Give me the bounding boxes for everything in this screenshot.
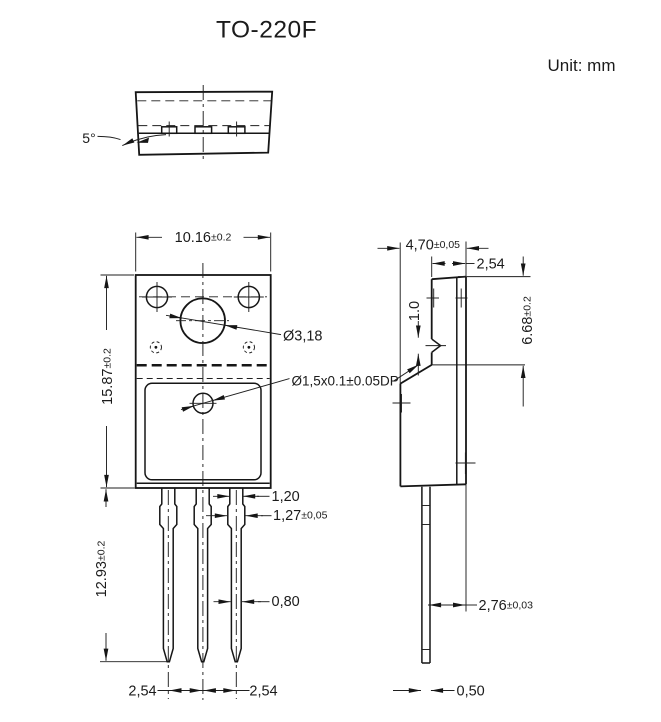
front-view: 10.16±0.2 15.87±0.2 12.93±0.2 1,20 bbox=[94, 230, 419, 700]
label-text: Ø3,18 bbox=[283, 329, 323, 345]
label-text: Ø1,5x0.1±0.05DP bbox=[292, 374, 399, 389]
draft-angle-leader-stub bbox=[98, 136, 121, 139]
side-view: 4,70±0,05 2,54 6.68±0.2 1.0 bbox=[378, 237, 537, 699]
dim-text: 15.87±0.2 bbox=[100, 348, 116, 405]
dim-text: 12.93±0.2 bbox=[94, 541, 110, 598]
draft-angle-label: 5° bbox=[82, 130, 95, 146]
dim-text: 2,54 bbox=[477, 256, 505, 272]
dim-text: 1,27±0,05 bbox=[273, 508, 328, 524]
dim-body-thickness: 4,70±0,05 bbox=[378, 237, 489, 384]
dim-text: 1,20 bbox=[272, 489, 300, 505]
pin-mark-dot bbox=[155, 346, 158, 349]
front-pin-mark-right bbox=[243, 342, 254, 353]
dim-text-left: 2,54 bbox=[128, 683, 156, 699]
dim-tab-height: 6.68±0.2 bbox=[458, 257, 536, 407]
side-dimple-centermark bbox=[393, 394, 411, 413]
top-view: 5° bbox=[82, 85, 272, 160]
dim-lead-shoulder-width: 1,27±0,05 bbox=[206, 508, 328, 524]
side-lead bbox=[422, 487, 430, 663]
dim-text-right: 2,54 bbox=[249, 683, 277, 699]
unit-label: Unit: mm bbox=[548, 56, 616, 75]
side-bottom-edge bbox=[400, 484, 466, 486]
front-mold-mark-left bbox=[142, 282, 172, 312]
label-mounting-hole: Ø3,18 bbox=[166, 315, 323, 344]
dim-text: 0,80 bbox=[272, 594, 300, 610]
front-mold-mark-right bbox=[234, 282, 264, 312]
leader-arrow bbox=[213, 398, 223, 401]
dim-tab-thickness: 2,54 bbox=[432, 256, 505, 277]
page-title: TO-220F bbox=[216, 17, 317, 44]
dim-lead-width: 0,80 bbox=[214, 594, 300, 610]
dim-text: 10.16±0.2 bbox=[175, 230, 232, 246]
side-chamfer-edge bbox=[400, 365, 431, 384]
drawing-sheet: TO-220F Unit: mm 5° bbox=[0, 0, 661, 722]
dim-front-height: 15.87±0.2 bbox=[100, 275, 135, 488]
dim-text: 2,76±0,03 bbox=[479, 598, 534, 614]
to220f-package-drawing: TO-220F Unit: mm 5° bbox=[0, 0, 661, 722]
front-pin-mark-left bbox=[150, 342, 161, 353]
dim-lead-offset: 2,76±0,03 bbox=[428, 484, 533, 614]
dim-dimple-height: 1.0 bbox=[407, 301, 423, 376]
dim-text: 1.0 bbox=[407, 301, 423, 321]
leader-arrow bbox=[184, 406, 194, 409]
dim-lead-thickness: 0,50 bbox=[393, 683, 485, 699]
label-dimple: Ø1,5x0.1±0.05DP bbox=[181, 365, 419, 410]
dim-lead-length: 12.93±0.2 bbox=[94, 489, 168, 661]
dim-text: 0,50 bbox=[457, 683, 485, 699]
pin-mark-dot bbox=[248, 346, 251, 349]
dim-text: 6.68±0.2 bbox=[520, 296, 536, 345]
leader-arrow bbox=[225, 325, 238, 327]
dim-text: 4,70±0,05 bbox=[406, 237, 461, 253]
dim-lead-base-width: 1,20 bbox=[213, 489, 300, 505]
side-back-centermark bbox=[456, 453, 476, 475]
